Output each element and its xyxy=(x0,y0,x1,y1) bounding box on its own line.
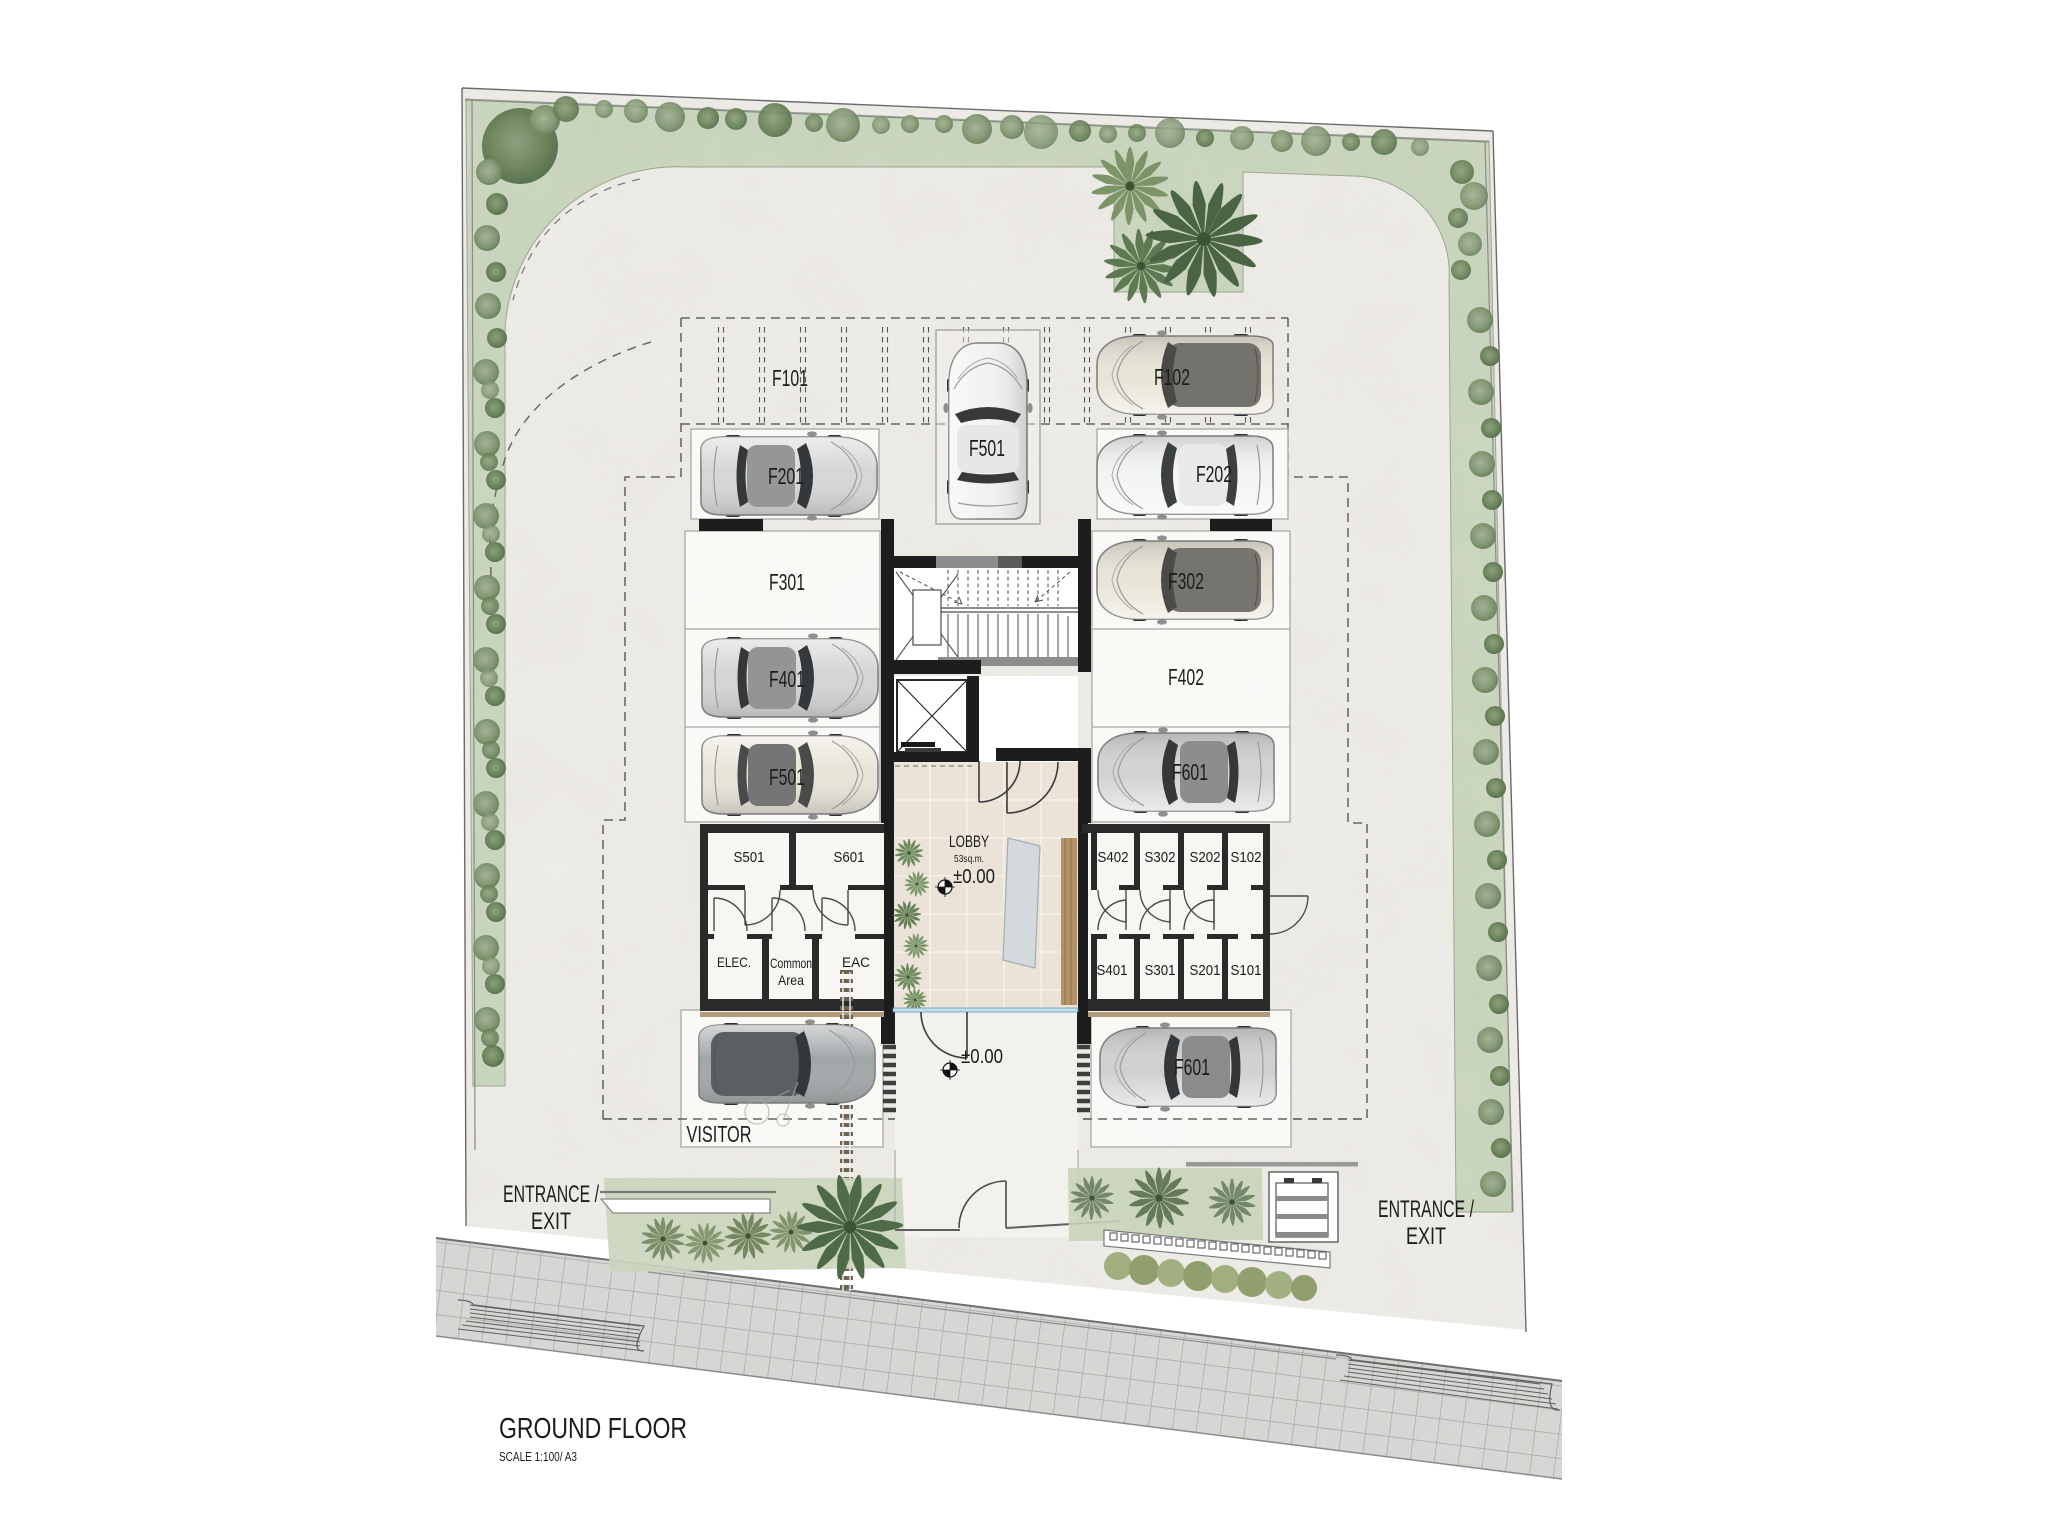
svg-text:F402: F402 xyxy=(1168,664,1204,690)
svg-text:F102: F102 xyxy=(1154,364,1190,390)
svg-text:F302: F302 xyxy=(1168,568,1204,594)
svg-text:±0.00: ±0.00 xyxy=(961,1046,1003,1068)
svg-text:EXIT: EXIT xyxy=(1406,1223,1446,1250)
svg-text:±0.00: ±0.00 xyxy=(953,866,995,888)
svg-text:F601: F601 xyxy=(1174,1054,1210,1080)
svg-text:S101: S101 xyxy=(1231,962,1262,979)
svg-text:ELEC.: ELEC. xyxy=(717,954,751,970)
svg-text:S202: S202 xyxy=(1190,849,1221,866)
svg-text:ENTRANCE /: ENTRANCE / xyxy=(503,1181,599,1208)
svg-text:F301: F301 xyxy=(769,569,805,595)
svg-text:S301: S301 xyxy=(1145,962,1176,979)
svg-text:S102: S102 xyxy=(1231,849,1262,866)
svg-text:S402: S402 xyxy=(1098,849,1129,866)
svg-text:F401: F401 xyxy=(769,666,805,692)
svg-text:S401: S401 xyxy=(1097,962,1128,979)
svg-text:Area: Area xyxy=(778,972,804,988)
svg-text:S201: S201 xyxy=(1190,962,1221,979)
svg-text:VISITOR: VISITOR xyxy=(687,1121,752,1147)
svg-text:F501: F501 xyxy=(769,764,805,790)
svg-text:S601: S601 xyxy=(834,849,865,866)
svg-text:F501: F501 xyxy=(969,435,1005,461)
svg-text:F101: F101 xyxy=(772,365,808,391)
svg-text:53sq.m.: 53sq.m. xyxy=(954,853,984,865)
svg-text:F202: F202 xyxy=(1196,461,1232,487)
svg-text:EXIT: EXIT xyxy=(531,1208,571,1235)
svg-text:S501: S501 xyxy=(734,849,765,866)
svg-text:Common: Common xyxy=(770,955,812,971)
svg-text:EAC: EAC xyxy=(842,954,870,970)
svg-text:GROUND FLOOR: GROUND FLOOR xyxy=(499,1413,687,1445)
svg-text:ENTRANCE /: ENTRANCE / xyxy=(1378,1196,1474,1223)
svg-text:F201: F201 xyxy=(768,463,804,489)
svg-text:LOBBY: LOBBY xyxy=(949,832,989,851)
svg-text:SCALE 1:100/ A3: SCALE 1:100/ A3 xyxy=(499,1450,577,1464)
svg-text:S302: S302 xyxy=(1145,849,1176,866)
svg-text:F601: F601 xyxy=(1172,759,1208,785)
